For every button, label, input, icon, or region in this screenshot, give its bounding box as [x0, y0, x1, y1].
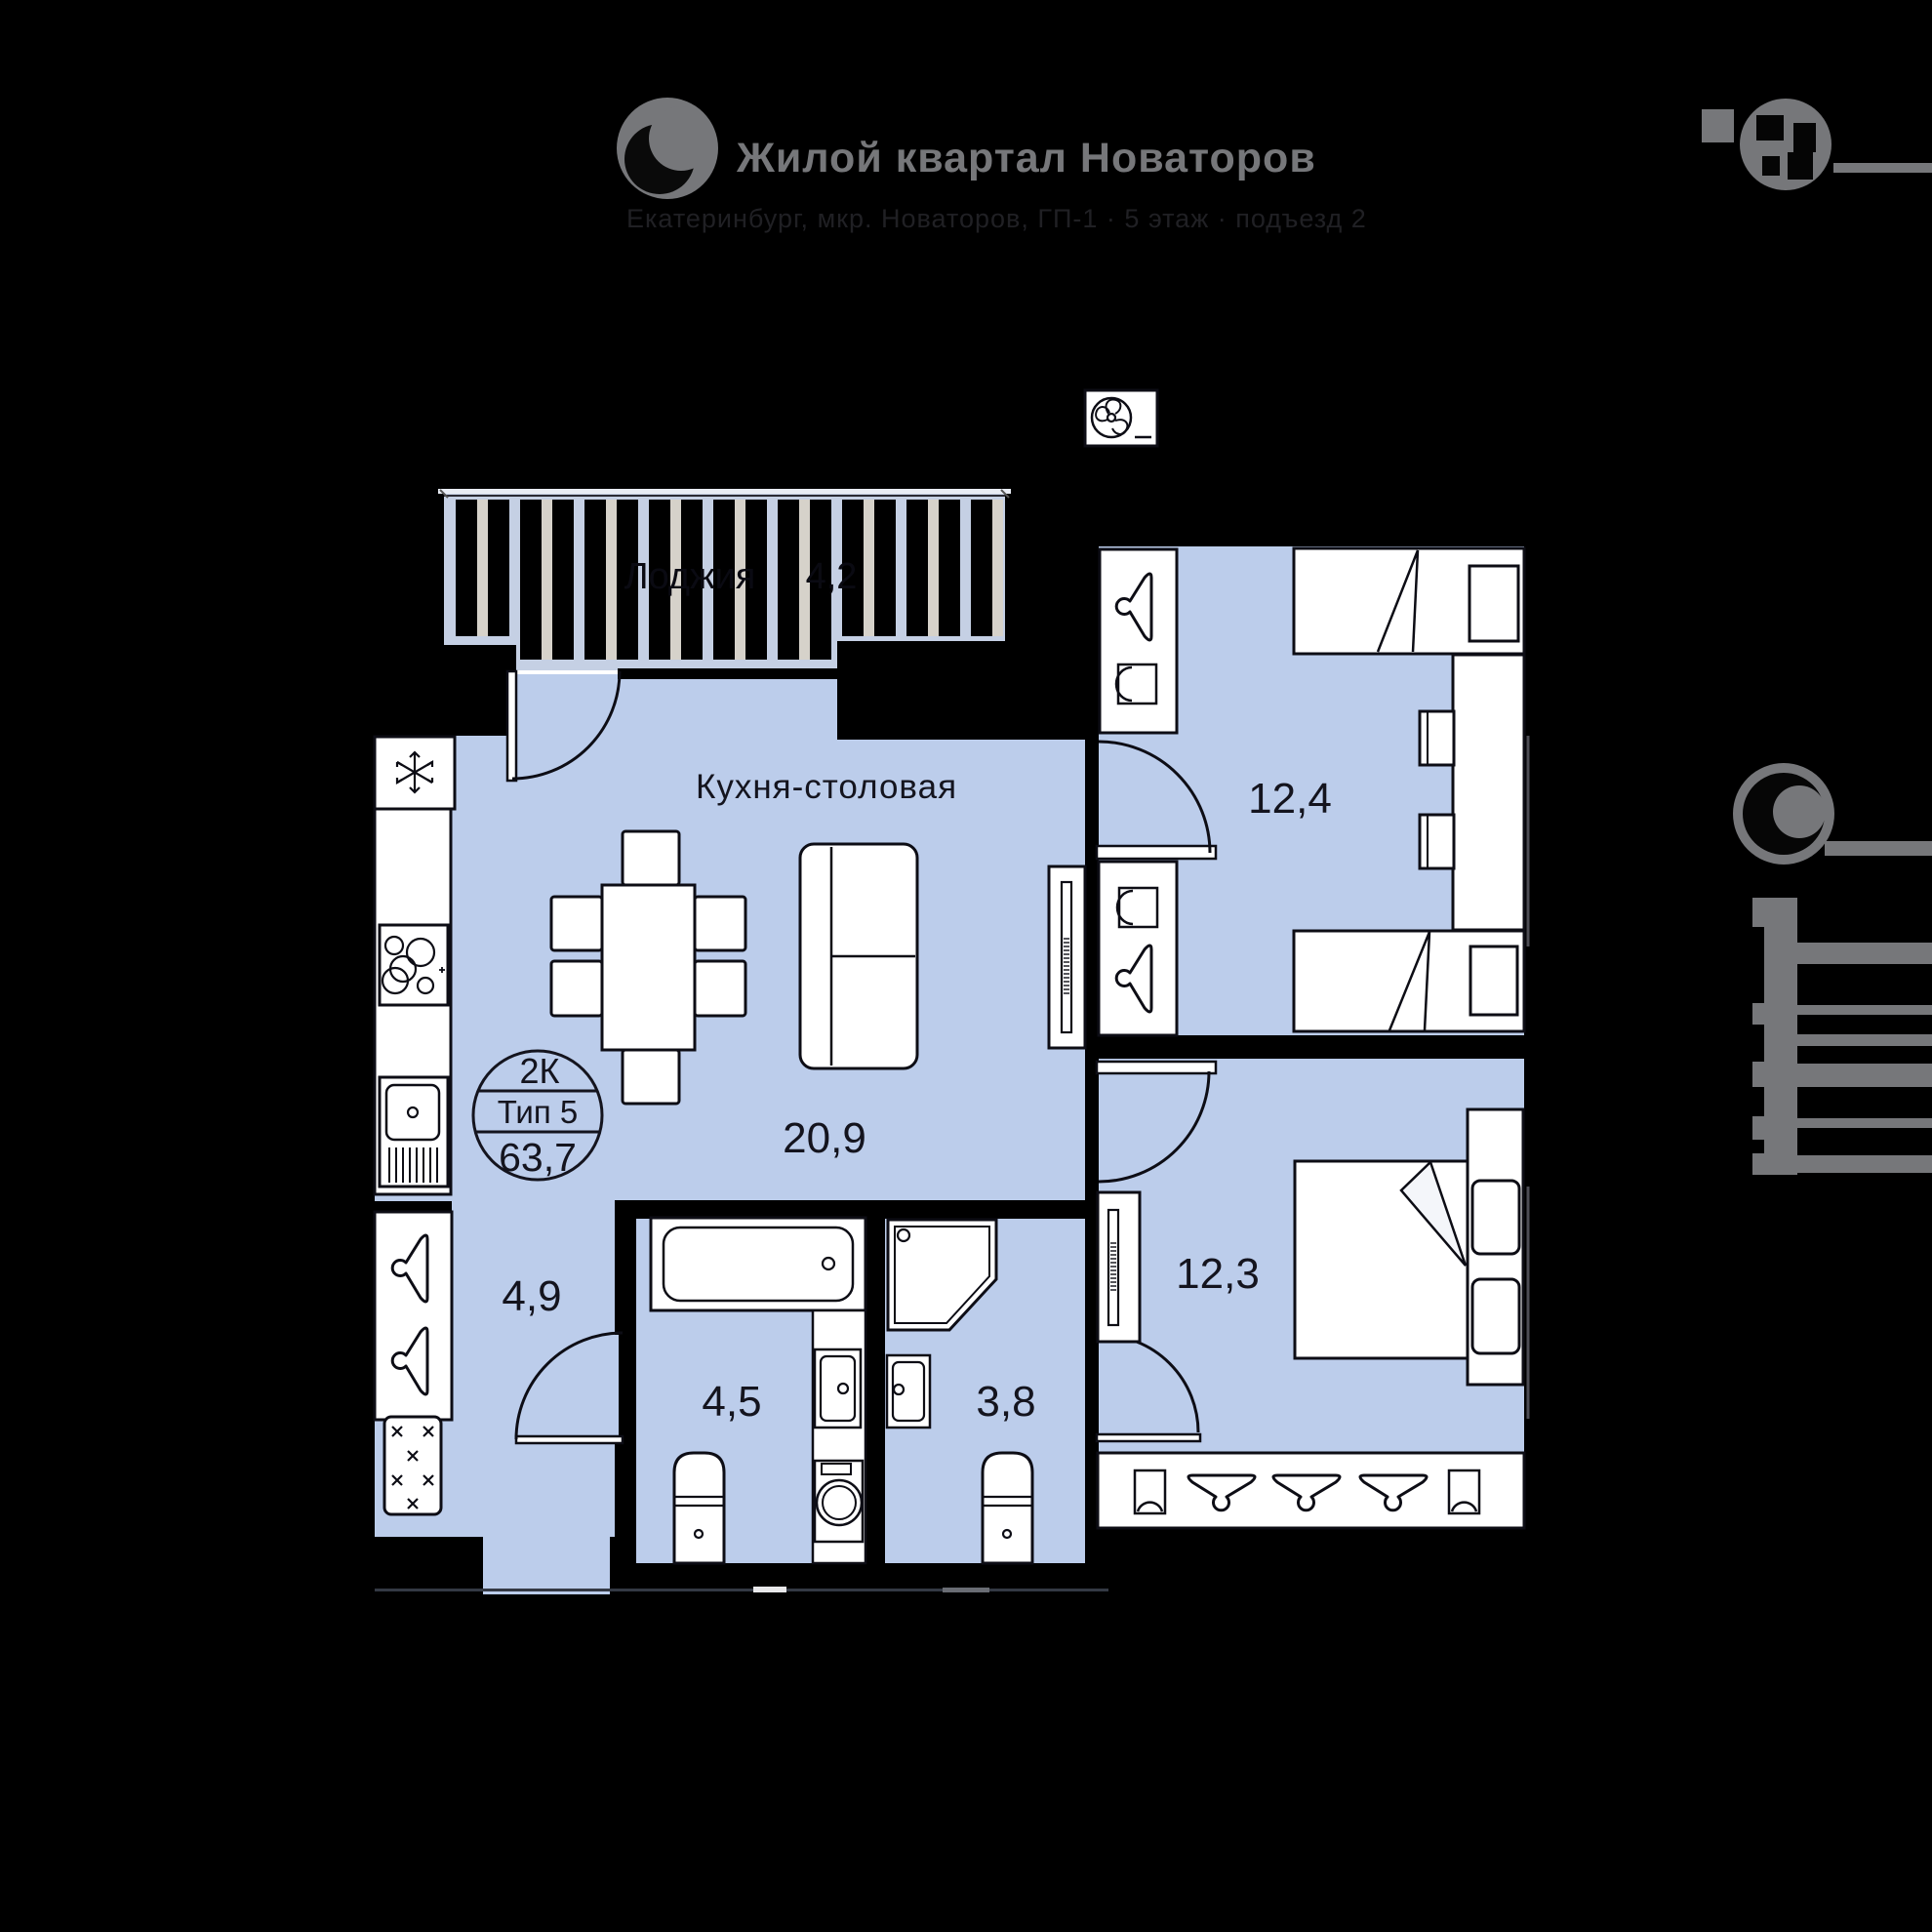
svg-text:Жилой квартал Новаторов: Жилой квартал Новаторов [736, 135, 1316, 181]
svg-text:4,5: 4,5 [702, 1378, 761, 1426]
svg-text:2К: 2К [520, 1051, 560, 1091]
svg-text:12,4: 12,4 [1248, 775, 1332, 823]
svg-text:12,3: 12,3 [1176, 1250, 1260, 1298]
svg-text:4,9: 4,9 [502, 1272, 561, 1320]
svg-text:20,9: 20,9 [783, 1114, 866, 1162]
svg-text:Кухня-столовая: Кухня-столовая [696, 768, 957, 806]
svg-text:Тип 5: Тип 5 [498, 1094, 579, 1130]
svg-text:Лоджия: Лоджия [624, 556, 756, 597]
svg-text:63,7: 63,7 [499, 1135, 577, 1180]
svg-text:4,2: 4,2 [806, 556, 858, 597]
svg-text:3,8: 3,8 [976, 1378, 1035, 1426]
svg-text:Екатеринбург, мкр. Новаторов,: Екатеринбург, мкр. Новаторов, ГП-1 · 5 э… [626, 204, 1367, 233]
